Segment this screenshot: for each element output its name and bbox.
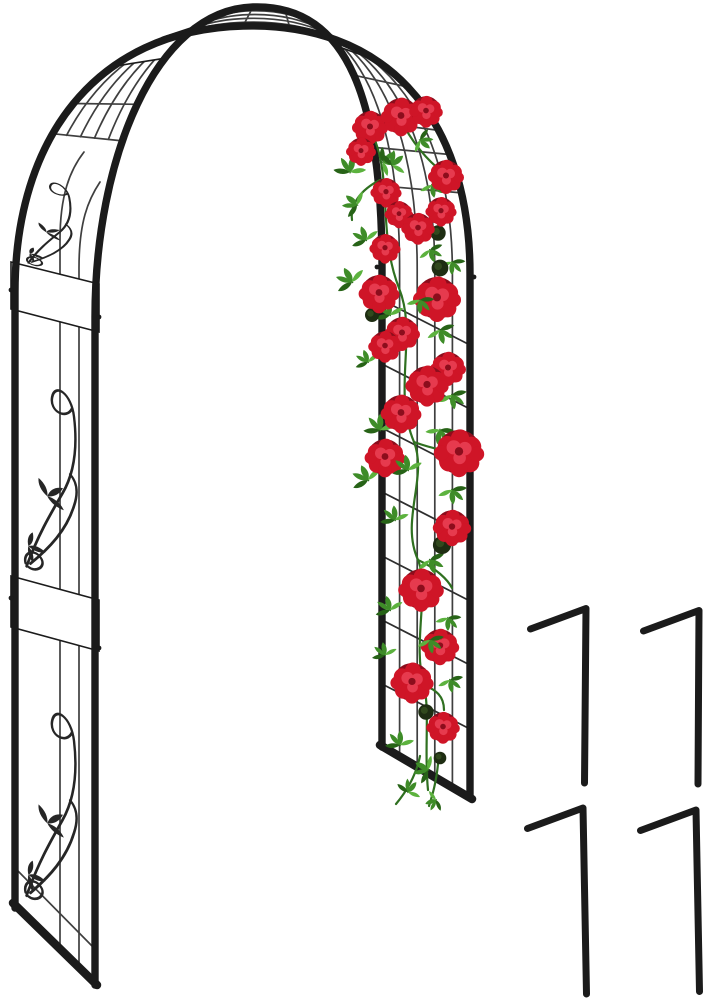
joint-nub (9, 596, 14, 601)
roof-rung (74, 104, 138, 105)
rose-bud (418, 704, 433, 719)
product-photo (0, 0, 724, 1000)
rose-bud (434, 752, 447, 765)
joint-nub (97, 646, 102, 651)
joint-nub (472, 275, 477, 280)
joint-nub (375, 265, 380, 270)
joint-nub (97, 315, 102, 320)
product-image (0, 0, 724, 1000)
joint-nub (9, 288, 14, 293)
rose-bud (432, 260, 449, 277)
